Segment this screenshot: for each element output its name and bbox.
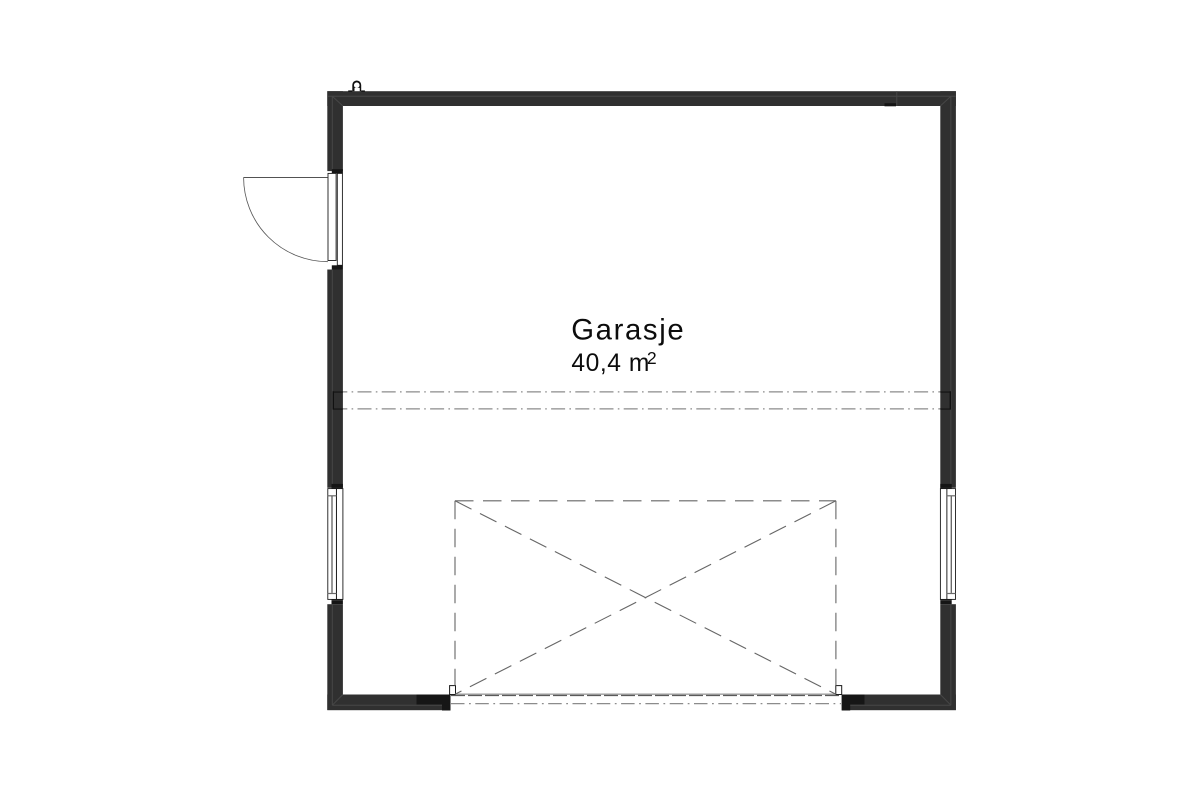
svg-text:2: 2 [647, 348, 657, 368]
svg-text:Garasje: Garasje [571, 313, 685, 346]
svg-text:40,4 m: 40,4 m [571, 350, 650, 377]
